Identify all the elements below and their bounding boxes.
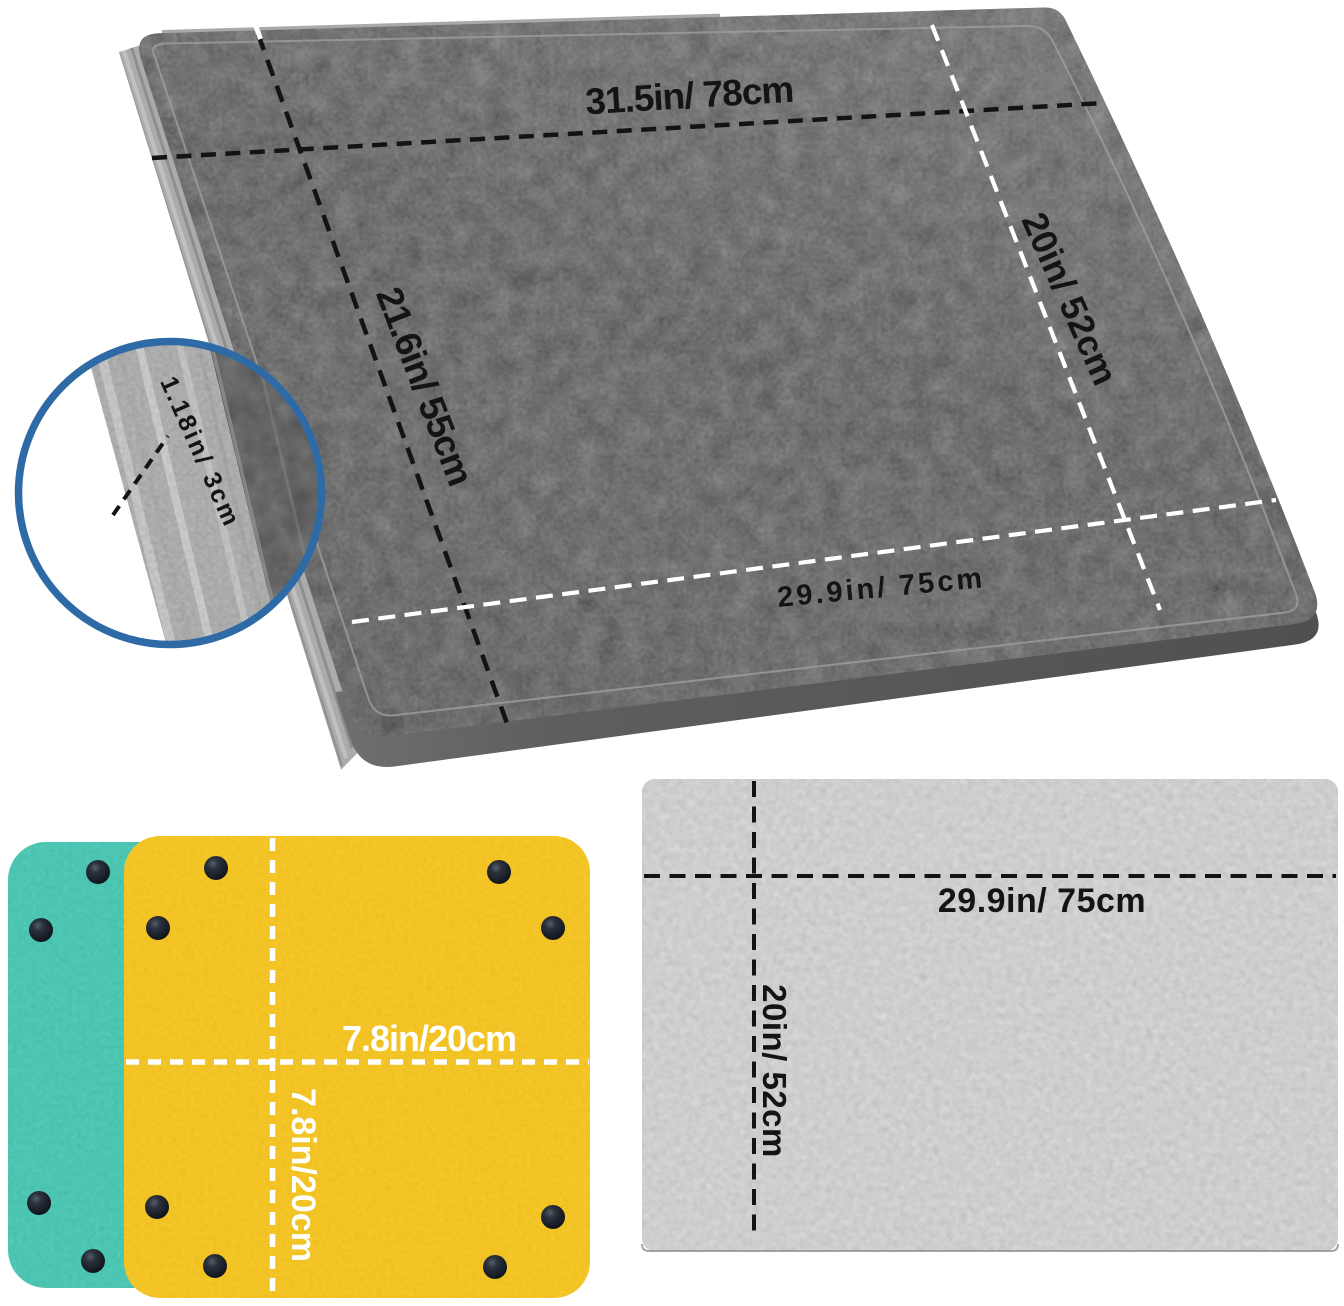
svg-text:7.8in/20cm: 7.8in/20cm [284,1088,322,1262]
svg-text:7.8in/20cm: 7.8in/20cm [342,1018,516,1059]
svg-text:29.9in/ 75cm: 29.9in/ 75cm [938,882,1146,920]
svg-text:20in/ 52cm: 20in/ 52cm [756,984,793,1158]
